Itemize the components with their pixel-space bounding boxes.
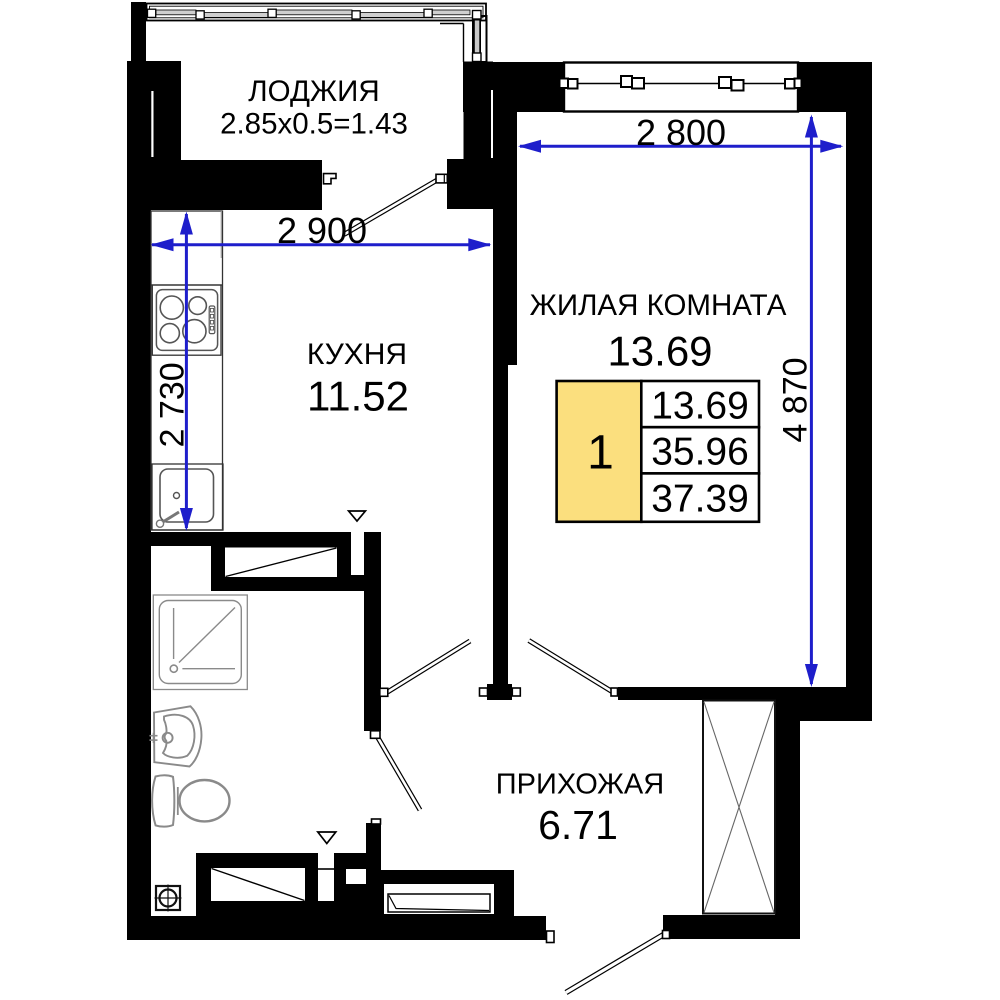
svg-text:ЖИЛАЯ КОМНАТА: ЖИЛАЯ КОМНАТА <box>530 289 787 322</box>
svg-text:37.39: 37.39 <box>651 478 749 521</box>
svg-text:1: 1 <box>587 427 614 480</box>
svg-text:4 870: 4 870 <box>777 357 815 442</box>
svg-text:11.52: 11.52 <box>307 372 409 419</box>
svg-text:КУХНЯ: КУХНЯ <box>307 338 407 371</box>
svg-text:6.71: 6.71 <box>538 802 618 848</box>
svg-text:13.69: 13.69 <box>607 327 712 374</box>
svg-text:2 900: 2 900 <box>277 210 367 251</box>
svg-text:2.85х0.5=1.43: 2.85х0.5=1.43 <box>220 108 408 141</box>
svg-text:2 800: 2 800 <box>636 112 726 153</box>
svg-text:ЛОДЖИЯ: ЛОДЖИЯ <box>248 75 379 108</box>
svg-text:ПРИХОЖАЯ: ПРИХОЖАЯ <box>496 769 664 801</box>
svg-text:35.96: 35.96 <box>651 430 749 473</box>
svg-text:13.69: 13.69 <box>651 384 749 427</box>
svg-text:2 730: 2 730 <box>153 362 191 447</box>
